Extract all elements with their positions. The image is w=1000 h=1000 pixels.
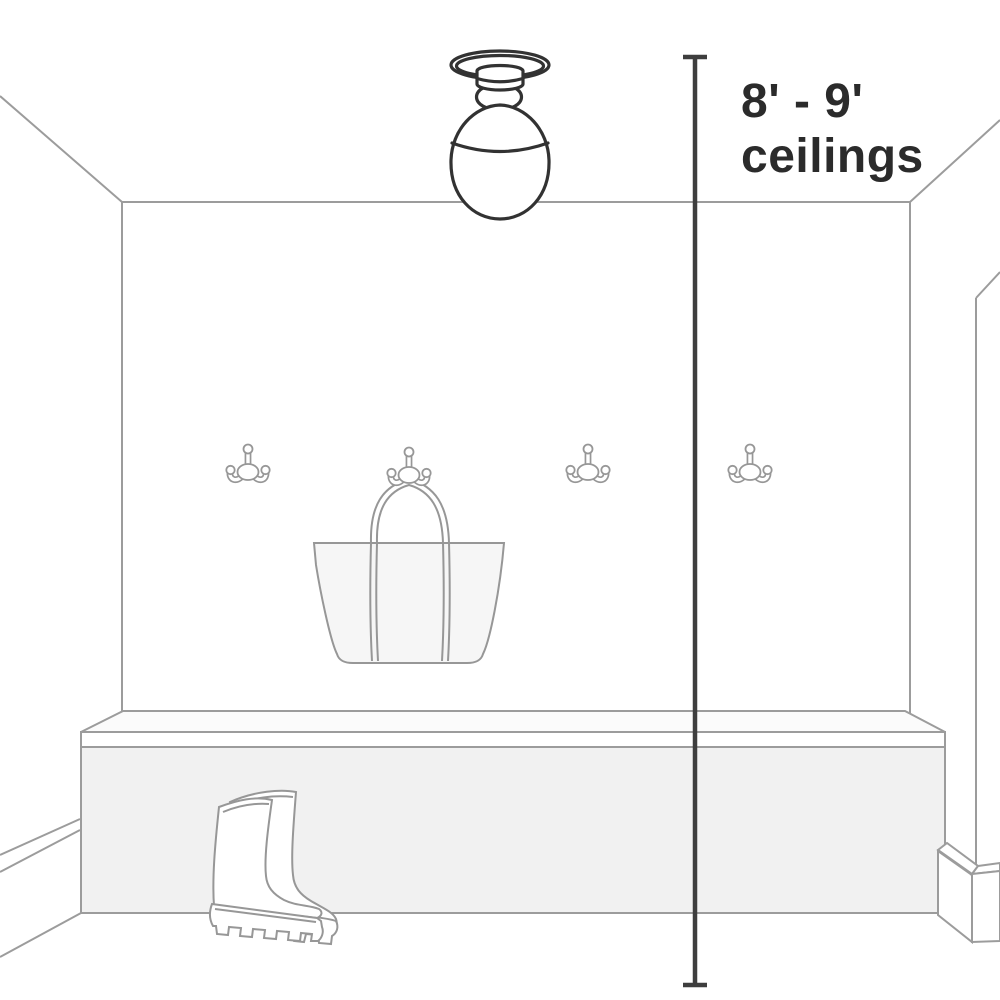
doorway-edge bbox=[976, 272, 1000, 866]
dimension-label-line2: ceilings bbox=[741, 130, 924, 183]
right-baseboard bbox=[938, 843, 1000, 942]
tote-bag-icon bbox=[314, 479, 504, 663]
bench bbox=[81, 711, 945, 913]
left-baseboard-lines bbox=[0, 819, 80, 872]
light-globe bbox=[451, 105, 549, 219]
ceiling-light-icon bbox=[451, 51, 549, 219]
mudroom-scale-illustration: 8' - 9' ceilings bbox=[0, 0, 1000, 1000]
tote-bag-handles bbox=[371, 479, 449, 543]
light-collar bbox=[477, 66, 523, 91]
bench-top bbox=[81, 711, 945, 732]
coat-hooks bbox=[226, 445, 771, 484]
tote-bag-body bbox=[314, 543, 504, 663]
ceiling-corner-left bbox=[0, 96, 122, 202]
illustration-svg: 8' - 9' ceilings bbox=[0, 0, 1000, 1000]
coat-hook-icon-3 bbox=[566, 445, 609, 481]
coat-hook-icon-2 bbox=[387, 448, 430, 484]
left-floor-line bbox=[0, 913, 81, 957]
bench-edge-band bbox=[81, 732, 945, 747]
bench-front bbox=[81, 747, 945, 913]
coat-hook-icon-4 bbox=[728, 445, 771, 481]
baseboard-right-face bbox=[972, 871, 1000, 942]
coat-hook-icon-1 bbox=[226, 445, 269, 481]
dimension-label-line1: 8' - 9' bbox=[741, 75, 863, 128]
